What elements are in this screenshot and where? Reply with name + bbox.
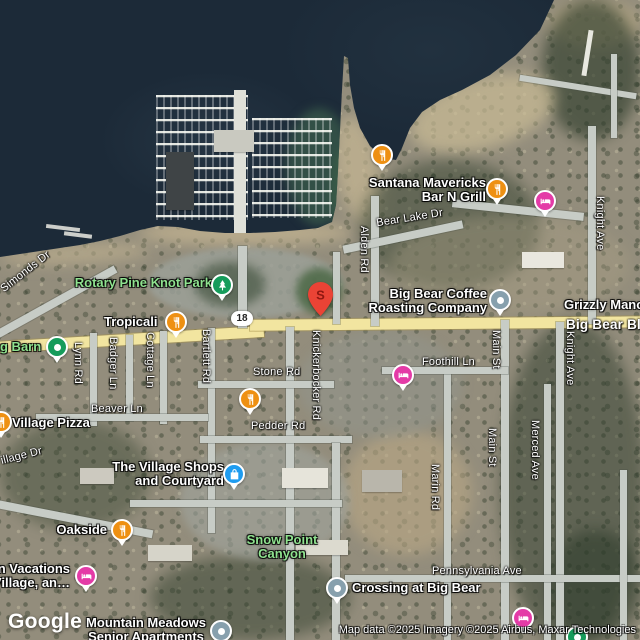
pine-tree-icon bbox=[216, 279, 229, 292]
place-label-line: Village, an… bbox=[0, 576, 70, 590]
street-label-pennsylvania-ave: Pennsylvania Ave bbox=[432, 565, 522, 577]
place-label-santana-mavericks[interactable]: Santana Mavericks Bar N Grill bbox=[346, 176, 486, 204]
street-label-main-st-south: Main St bbox=[486, 428, 498, 467]
place-label-line: Bar N Grill bbox=[346, 190, 486, 204]
place-label-line: and Courtyard bbox=[100, 474, 224, 488]
street-label-knight-ave-north: Knight Ave bbox=[594, 196, 606, 250]
restaurant-icon bbox=[376, 149, 389, 162]
place-label-oakside[interactable]: Oakside bbox=[30, 523, 107, 537]
map-attribution: Map data ©2025 Imagery ©2025 Airbus, Max… bbox=[339, 624, 636, 636]
street-label-beaver-ln: Beaver Ln bbox=[91, 403, 143, 415]
west-bay-dock-1 bbox=[46, 224, 80, 232]
lodging-marker-vacations[interactable] bbox=[75, 565, 97, 587]
building-mid bbox=[362, 470, 402, 492]
building-marina-dark bbox=[166, 152, 194, 210]
marina-main-pier bbox=[234, 90, 246, 258]
satellite-map-canvas[interactable]: Simonds Dr Bear Lake Dr Alden Rd Knight … bbox=[0, 0, 640, 640]
road-village-horizontal bbox=[130, 500, 342, 507]
street-label-cottage-ln: Cottage Ln bbox=[144, 332, 156, 388]
road-topright-2 bbox=[611, 54, 617, 138]
shopping-marker-village-shops[interactable] bbox=[223, 463, 245, 485]
place-label-barn[interactable]: g Barn bbox=[0, 340, 41, 354]
street-label-main-st-north: Main St bbox=[490, 330, 502, 369]
place-label-tropicali[interactable]: Tropicali bbox=[104, 315, 157, 329]
bed-icon bbox=[517, 612, 530, 625]
street-label-marin-rd: Marin Rd bbox=[429, 464, 441, 510]
place-label-line: Canyon bbox=[232, 547, 332, 561]
bed-icon bbox=[539, 195, 552, 208]
road-pedder bbox=[200, 436, 352, 443]
building-village-3 bbox=[148, 545, 192, 561]
place-label-mountain-meadows[interactable]: Mountain Meadows Senior Apartments bbox=[84, 616, 208, 640]
street-label-bartlett-rd: Bartlett Rd bbox=[200, 329, 212, 383]
place-label-line: Mountain Meadows bbox=[84, 616, 208, 630]
place-label-snow-point-canyon[interactable]: Snow Point Canyon bbox=[232, 533, 332, 561]
street-label-stone-rd: Stone Rd bbox=[253, 366, 300, 378]
road-boat-launch bbox=[333, 252, 340, 324]
generic-poi-marker-crossing[interactable] bbox=[326, 577, 348, 599]
pin-letter: S bbox=[316, 288, 325, 303]
street-label-foothill-ln: Foothill Ln bbox=[422, 356, 475, 368]
search-result-pin[interactable]: S bbox=[307, 281, 334, 317]
road-knight-south bbox=[556, 322, 564, 640]
place-label-line: Santana Mavericks bbox=[346, 176, 486, 190]
park-marker-rotary[interactable] bbox=[211, 274, 233, 296]
street-label-knight-ave-south: Knight Ave bbox=[564, 331, 576, 385]
restaurant-marker-oakside[interactable] bbox=[111, 519, 133, 541]
generic-poi-marker-coffee[interactable] bbox=[489, 289, 511, 311]
place-pin-barn[interactable] bbox=[46, 336, 68, 358]
street-label-lynn-rd: Lynn Rd bbox=[72, 342, 84, 384]
terrain-forest-topright bbox=[542, 0, 640, 140]
place-label-crossing-at-big-bear[interactable]: Crossing at Big Bear bbox=[352, 581, 481, 595]
place-label-grizzly-manor[interactable]: Grizzly Mano bbox=[564, 298, 640, 312]
restaurant-icon bbox=[244, 393, 257, 406]
place-label-village-shops[interactable]: The Village Shops and Courtyard bbox=[100, 460, 224, 488]
road-right-vertical bbox=[620, 470, 627, 640]
generic-poi-marker-meadows[interactable] bbox=[210, 620, 232, 640]
place-label-rotary-pine-knot-park[interactable]: Rotary Pine Knot Park bbox=[30, 276, 212, 290]
street-label-badger-ln: Badger Ln bbox=[107, 337, 119, 390]
place-label-line: The Village Shops bbox=[100, 460, 224, 474]
building-marina-light bbox=[214, 130, 254, 152]
building-village-shops bbox=[282, 468, 328, 488]
restaurant-marker-stone-rd[interactable] bbox=[239, 388, 261, 410]
route-18-shield: 18 bbox=[231, 311, 253, 326]
shopping-bag-icon bbox=[228, 468, 241, 481]
restaurant-marker-santana[interactable] bbox=[486, 178, 508, 200]
street-label-alden-rd: Alden Rd bbox=[358, 226, 370, 273]
restaurant-icon bbox=[0, 416, 8, 429]
street-label-pedder-rd: Pedder Rd bbox=[251, 420, 305, 432]
place-label-village-pizza[interactable]: Village Pizza bbox=[12, 416, 90, 430]
lodging-marker-north[interactable] bbox=[534, 190, 556, 212]
place-label-line: Big Bear Coffee bbox=[347, 287, 487, 301]
street-label-knickerbocker-rd: Knickerbocker Rd bbox=[310, 330, 322, 420]
restaurant-marker[interactable] bbox=[371, 144, 393, 166]
road-cottage bbox=[160, 331, 167, 424]
place-label-vacations-village[interactable]: n Vacations Village, an… bbox=[0, 562, 70, 590]
place-label-line: Snow Point bbox=[232, 533, 332, 547]
place-label-line: Senior Apartments bbox=[84, 630, 208, 640]
place-label-big-bear-coffee[interactable]: Big Bear Coffee Roasting Company bbox=[347, 287, 487, 315]
google-logo[interactable]: Google bbox=[8, 610, 82, 634]
bed-icon bbox=[80, 570, 93, 583]
street-label-merced-ave: Merced Ave bbox=[529, 420, 541, 480]
marina-dock-cluster-east bbox=[252, 118, 332, 218]
bed-icon bbox=[397, 369, 410, 382]
lodging-marker-foothill[interactable] bbox=[392, 364, 414, 386]
restaurant-icon bbox=[491, 183, 504, 196]
restaurant-icon bbox=[116, 524, 129, 537]
street-label-big-bear-blvd: Big Bear Blv bbox=[566, 317, 640, 332]
road-merced bbox=[544, 384, 551, 640]
place-label-line: Roasting Company bbox=[347, 301, 487, 315]
place-label-line: n Vacations bbox=[0, 562, 70, 576]
restaurant-icon bbox=[170, 316, 183, 329]
restaurant-marker-tropicali[interactable] bbox=[165, 311, 187, 333]
road-marin bbox=[444, 372, 451, 640]
building-coffee-area bbox=[522, 252, 564, 268]
west-bay-dock-2 bbox=[64, 231, 92, 238]
terrain-dirt-bottommid bbox=[342, 430, 472, 555]
